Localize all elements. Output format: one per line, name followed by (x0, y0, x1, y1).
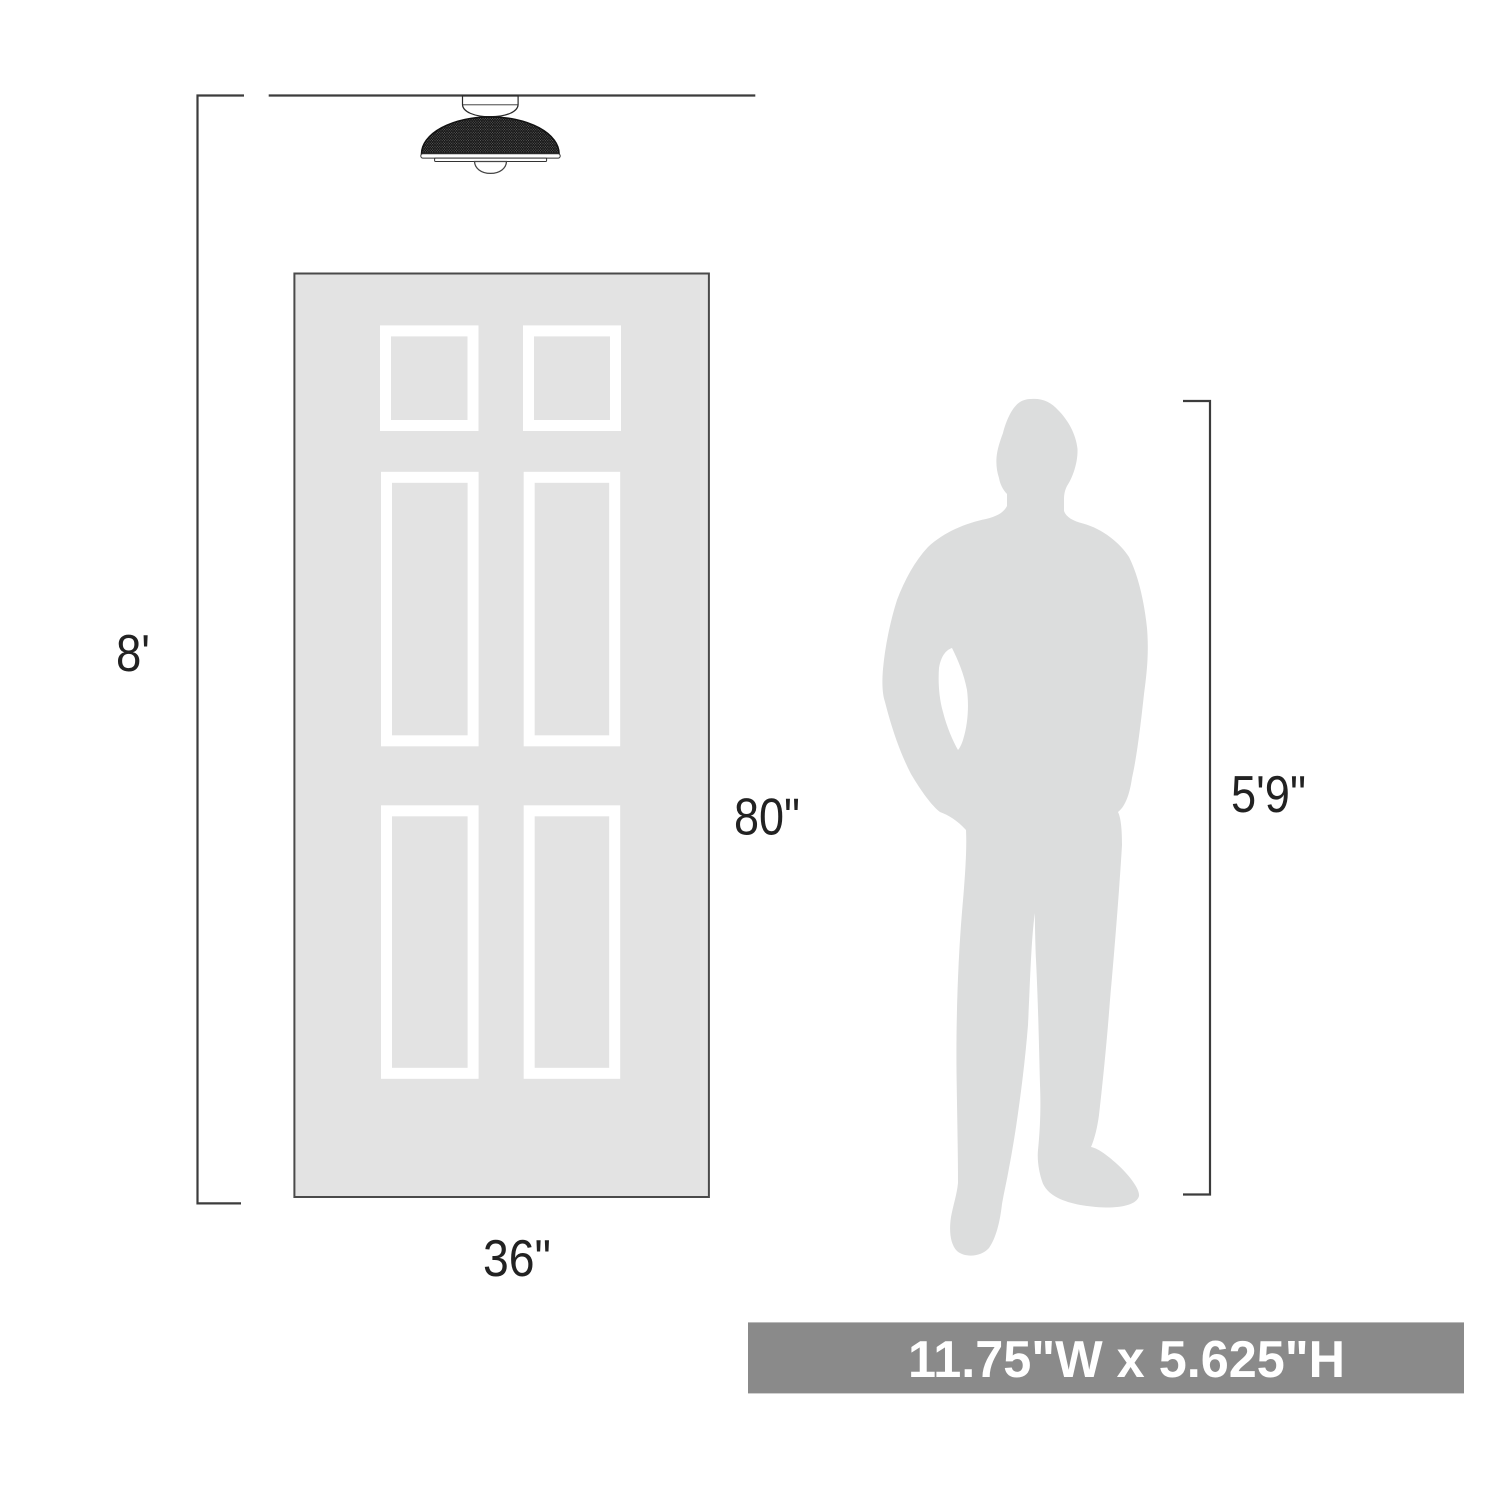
svg-text:5'9": 5'9" (1231, 766, 1306, 824)
svg-text:36": 36" (483, 1230, 551, 1288)
svg-text:80": 80" (734, 789, 800, 847)
svg-text:11.75"W x 5.625"H: 11.75"W x 5.625"H (908, 1331, 1345, 1389)
svg-text:8': 8' (116, 625, 150, 683)
